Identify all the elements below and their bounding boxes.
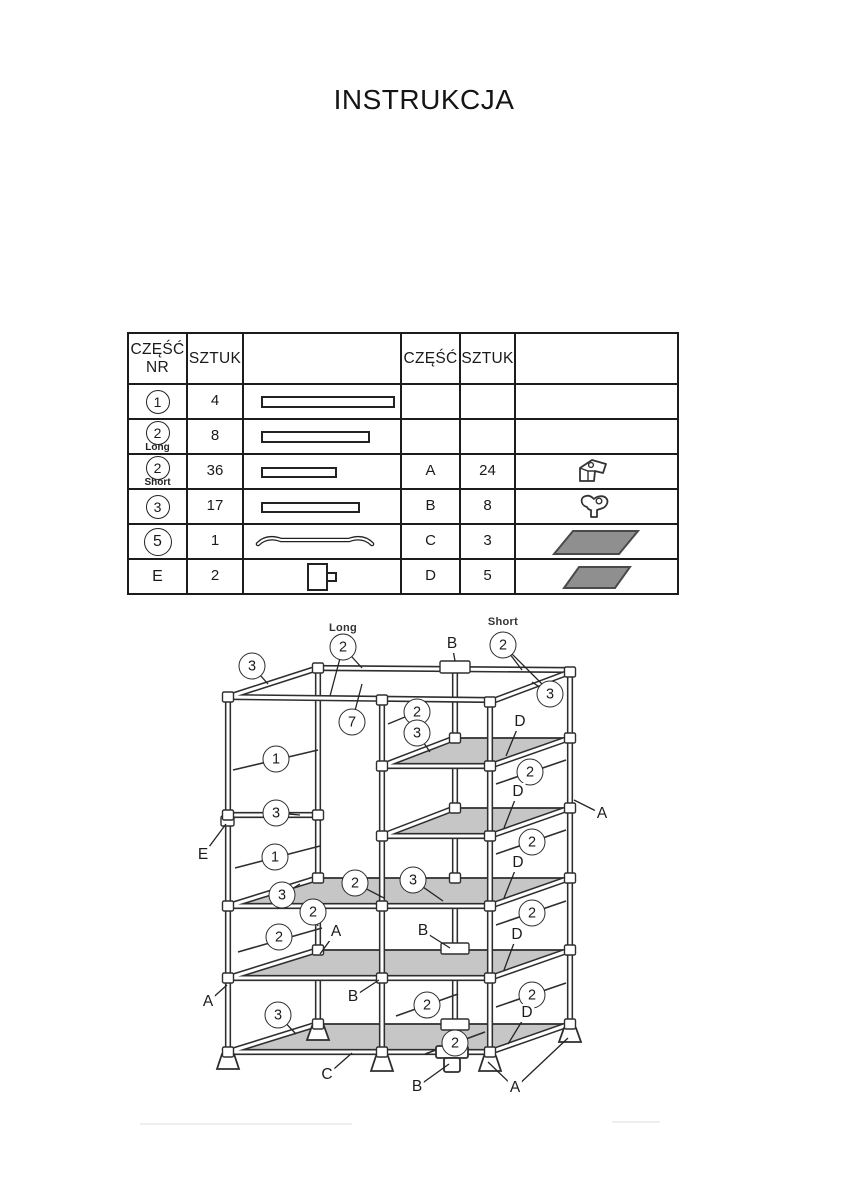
short-label: Short — [488, 616, 518, 628]
long-label: Long — [329, 622, 357, 634]
scan-artifacts — [140, 1122, 660, 1124]
instruction-sheet: INSTRUKCJA CZĘŚĆ NR SZTUK CZĘŚĆ SZTUK 1 … — [0, 0, 848, 1200]
leader-lines — [203, 644, 602, 1088]
assembly-diagram — [0, 0, 848, 1200]
